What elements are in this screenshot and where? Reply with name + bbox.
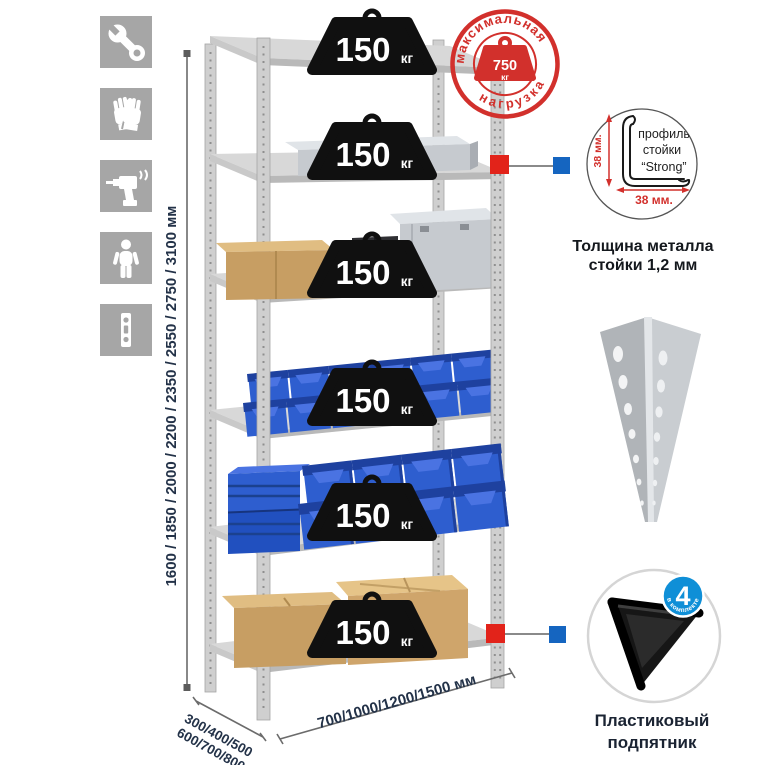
red-marker: [486, 624, 505, 643]
stamp-load-unit: кг: [501, 72, 509, 82]
foot-caption: подпятник: [608, 733, 697, 752]
profile-horizontal-dim: 38 мм.: [635, 193, 673, 207]
stamp-weight-glyph: 750 кг: [477, 38, 533, 82]
drill-icon: [100, 160, 152, 212]
sidebar: [100, 16, 152, 356]
load-value: 150: [335, 497, 390, 534]
load-unit: кг: [401, 517, 414, 532]
load-badge-2: 150 кг: [312, 116, 432, 175]
profile-vertical-dim: 38 мм.: [592, 134, 604, 167]
wrench-icon: [100, 16, 152, 68]
profile-label: “Strong”: [641, 160, 686, 174]
load-value: 150: [335, 31, 390, 68]
load-unit: кг: [401, 402, 414, 417]
load-badge-1: 150 кг: [312, 11, 432, 70]
profile-callout-connector: [490, 155, 570, 174]
load-unit: кг: [401, 634, 414, 649]
load-unit: кг: [401, 51, 414, 66]
width-dimension-label: 700/1000/1200/1500 мм: [316, 671, 478, 732]
front-right-post: [491, 46, 504, 688]
height-dimension-label: 1600 / 1850 / 2000 / 2200 / 2350 / 2550 …: [163, 206, 180, 587]
red-marker: [490, 155, 509, 174]
person-icon: [100, 232, 152, 284]
foot-detail: 4 в комплекте Пластиковый подпятник: [588, 570, 720, 752]
infographic-canvas: 1600 / 1850 / 2000 / 2200 / 2350 / 2550 …: [0, 0, 765, 765]
blue-marker: [553, 157, 570, 174]
height-dimension: 1600 / 1850 / 2000 / 2200 / 2350 / 2550 …: [163, 50, 191, 691]
profile-caption: стойки 1,2 мм: [589, 257, 698, 274]
gloves-icon: [100, 88, 152, 140]
shelving-infographic: 1600 / 1850 / 2000 / 2200 / 2350 / 2550 …: [0, 0, 765, 765]
dimension-end-cap: [184, 684, 191, 691]
shelf-load-badges: 150 кг 150 кг 150 кг 150 кг 150 кг: [312, 11, 432, 653]
dimension-end-cap: [184, 50, 191, 57]
profile-caption: Толщина металла: [572, 238, 713, 255]
blue-marker: [549, 626, 566, 643]
foot-callout-connector: [486, 624, 566, 643]
load-value: 150: [335, 136, 390, 173]
rack-post-profile-icon: [100, 304, 152, 356]
profile-label: стойки: [643, 143, 681, 157]
load-value: 150: [335, 614, 390, 651]
kit-count-badge: 4 в комплекте: [663, 576, 704, 617]
load-unit: кг: [401, 274, 414, 289]
profile-label: профиль: [638, 127, 690, 141]
load-value: 150: [335, 382, 390, 419]
profile-detail: 38 мм. 38 мм. профиль стойки “Strong” То…: [572, 109, 713, 274]
load-value: 150: [335, 254, 390, 291]
width-dimension: 700/1000/1200/1500 мм: [277, 668, 515, 744]
load-unit: кг: [401, 156, 414, 171]
angle-post-image: [600, 317, 701, 522]
foot-caption: Пластиковый: [595, 711, 710, 730]
blue-crate: [228, 464, 310, 554]
